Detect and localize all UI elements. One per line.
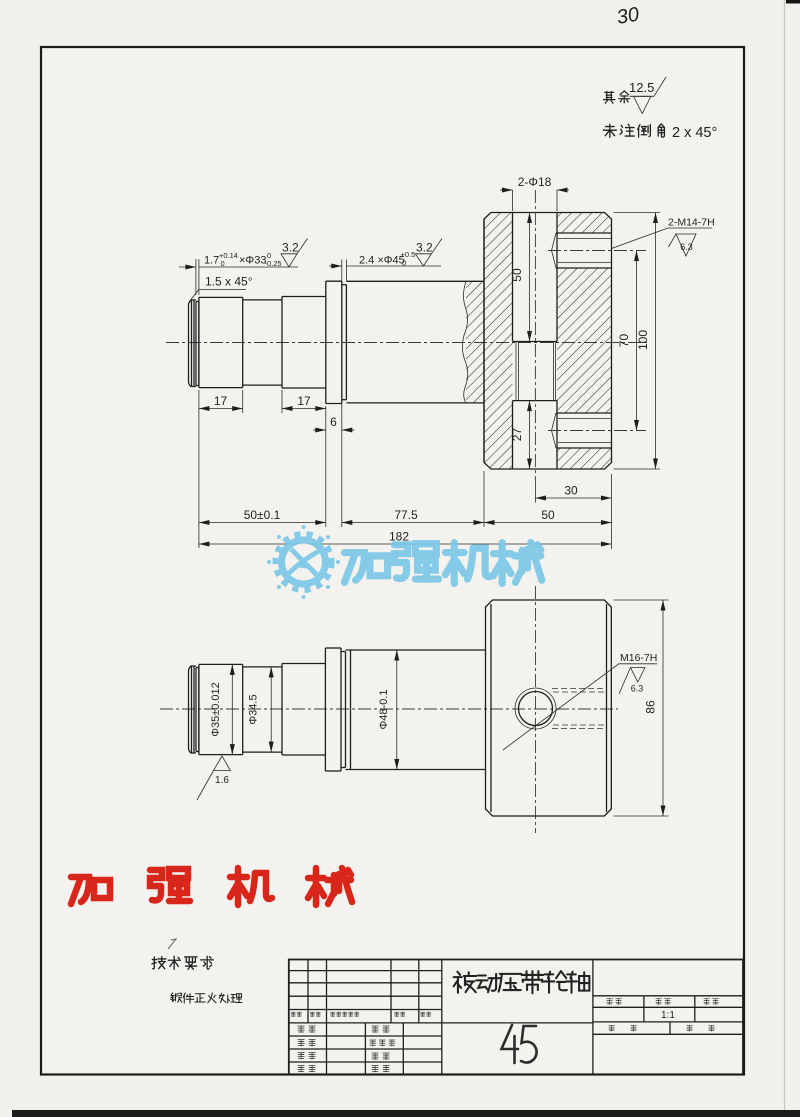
svg-text:Φ48-0.1: Φ48-0.1 bbox=[378, 690, 390, 730]
svg-text:17: 17 bbox=[214, 394, 228, 408]
svg-text:50±0.1: 50±0.1 bbox=[244, 508, 281, 522]
svg-text:Φ34.5: Φ34.5 bbox=[248, 694, 260, 724]
svg-text:1:1: 1:1 bbox=[661, 1010, 675, 1021]
svg-text:2.4 ×Φ45: 2.4 ×Φ45 bbox=[359, 255, 405, 267]
svg-text:1.6: 1.6 bbox=[215, 775, 229, 786]
svg-text:×Φ33: ×Φ33 bbox=[239, 255, 266, 267]
svg-text:30: 30 bbox=[615, 3, 641, 29]
svg-text:M16-7H: M16-7H bbox=[620, 652, 657, 664]
svg-text:77.5: 77.5 bbox=[394, 508, 418, 522]
svg-text:1.5 x 45°: 1.5 x 45° bbox=[205, 275, 253, 289]
svg-text:2-Φ18: 2-Φ18 bbox=[518, 175, 552, 189]
svg-text:2-M14-7H: 2-M14-7H bbox=[668, 217, 715, 229]
svg-text:Φ35±0.012: Φ35±0.012 bbox=[210, 682, 222, 737]
svg-text:27: 27 bbox=[510, 428, 524, 442]
svg-text:0: 0 bbox=[221, 259, 225, 268]
svg-text:2 x 45°: 2 x 45° bbox=[672, 125, 717, 141]
svg-text:100: 100 bbox=[636, 330, 650, 350]
svg-text:6: 6 bbox=[330, 415, 337, 429]
svg-text:50: 50 bbox=[541, 508, 555, 522]
svg-text:30: 30 bbox=[564, 484, 578, 498]
svg-text:3.2: 3.2 bbox=[282, 241, 299, 255]
svg-text:6.3: 6.3 bbox=[631, 684, 644, 694]
svg-text:86: 86 bbox=[644, 700, 658, 714]
svg-text:3.2: 3.2 bbox=[416, 241, 433, 255]
svg-text:1.7: 1.7 bbox=[204, 255, 219, 267]
svg-text:6.3: 6.3 bbox=[680, 242, 693, 252]
svg-text:-0.25: -0.25 bbox=[265, 259, 282, 268]
svg-text:50: 50 bbox=[510, 268, 524, 282]
svg-text:0: 0 bbox=[402, 259, 406, 268]
svg-text:17: 17 bbox=[297, 394, 311, 408]
svg-text:12.5: 12.5 bbox=[629, 80, 654, 95]
svg-text:70: 70 bbox=[617, 334, 631, 348]
